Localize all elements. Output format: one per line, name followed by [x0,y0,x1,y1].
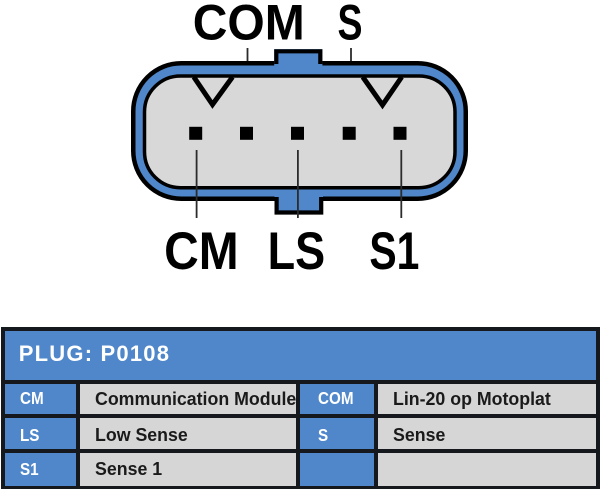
svg-text:S1: S1 [369,222,419,281]
svg-text:CM: CM [164,222,239,281]
svg-text:LS: LS [268,222,326,281]
svg-text:S: S [338,0,363,50]
svg-text:COM: COM [193,0,305,50]
